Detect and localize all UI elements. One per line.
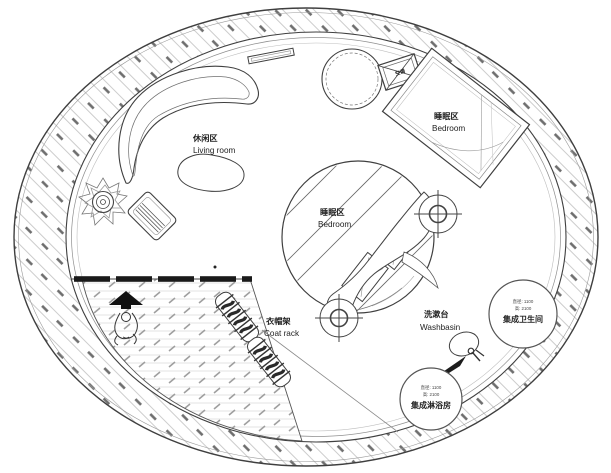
coat-rack-label-en: Coat rack <box>264 329 300 338</box>
bathroom-pod: 直径: 1100 高: 2100 集成卫生间 <box>489 280 557 348</box>
bathroom-pod-spec2: 高: 2100 <box>515 305 532 312</box>
living-room-label-zh: 休闲区 <box>192 133 218 143</box>
floor-dot <box>214 266 217 269</box>
shower-pod: 直径: 1100 高: 2100 集成淋浴房 <box>400 368 462 430</box>
shower-pod-label: 集成淋浴房 <box>410 400 451 410</box>
bedroom-center-label-en: Bedroom <box>318 220 351 229</box>
coat-rack-label-zh: 衣帽架 <box>266 316 291 326</box>
bedroom-center-label-zh: 睡眠区 <box>320 207 345 217</box>
shower-pod-spec2: 高: 2100 <box>423 391 440 398</box>
living-room-label-en: Living room <box>193 146 236 155</box>
shower-pod-spec1: 直径: 1100 <box>421 384 442 390</box>
bedroom-right-label-zh: 睡眠区 <box>434 111 459 121</box>
floor-plan: 休闲区 Living room 空调 睡眠区 Bedroom <box>0 0 611 473</box>
bathroom-pod-spec1: 直径: 1100 <box>513 298 534 304</box>
bedroom-right-label-en: Bedroom <box>432 124 465 133</box>
window-wall <box>71 276 252 282</box>
washbasin-label-zh: 洗漱台 <box>424 309 449 319</box>
round-table <box>322 49 382 109</box>
bathroom-pod-label: 集成卫生间 <box>502 314 543 324</box>
washbasin-label-en: Washbasin <box>420 323 461 332</box>
